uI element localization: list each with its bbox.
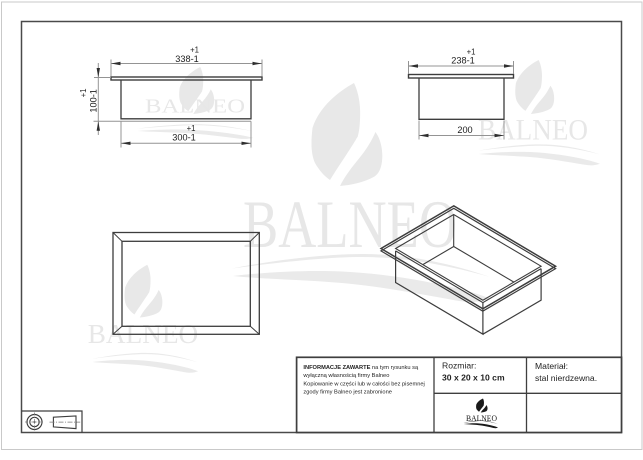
svg-text:Materiał:: Materiał: xyxy=(535,361,568,371)
svg-text:INFORMACJE ZAWARTE na tym rysu: INFORMACJE ZAWARTE na tym rysunku są xyxy=(303,365,419,371)
svg-text:BALNEO: BALNEO xyxy=(145,97,245,118)
svg-text:300-1: 300-1 xyxy=(172,133,196,143)
svg-text:338-1: 338-1 xyxy=(175,54,199,64)
svg-text:Kopiowanie w części lub w cało: Kopiowanie w części lub w całości bez pi… xyxy=(303,382,424,388)
svg-text:+1: +1 xyxy=(79,89,88,98)
svg-text:BALNEO: BALNEO xyxy=(478,114,588,147)
svg-text:200: 200 xyxy=(457,125,472,135)
svg-text:238-1: 238-1 xyxy=(451,56,475,66)
svg-text:stal nierdzewna.: stal nierdzewna. xyxy=(535,373,597,383)
svg-text:Rozmiar:: Rozmiar: xyxy=(442,361,476,371)
svg-text:100-1: 100-1 xyxy=(89,89,99,113)
svg-text:30 x 20 x 10 cm: 30 x 20 x 10 cm xyxy=(442,373,505,383)
svg-text:BALNEO: BALNEO xyxy=(243,186,457,262)
svg-text:wyłączną własnością firmy Baln: wyłączną własnością firmy Balneo xyxy=(302,373,389,379)
svg-text:BALNEO: BALNEO xyxy=(88,318,199,349)
svg-text:zgody firmy Balneo jest zabron: zgody firmy Balneo jest zabronione xyxy=(303,389,392,395)
